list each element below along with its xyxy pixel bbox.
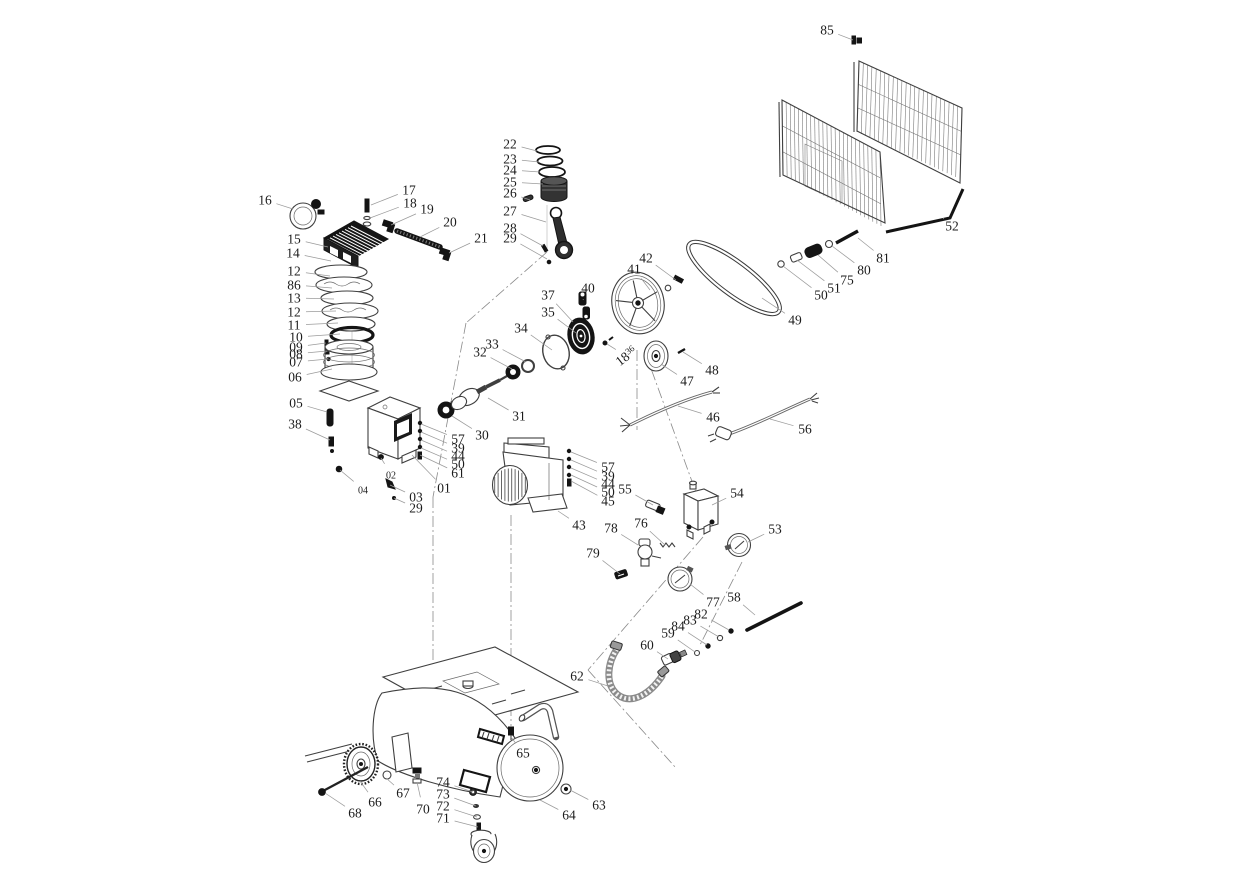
crankshaft-assembly (438, 292, 613, 418)
part-label-02: 02 (386, 471, 396, 482)
part-label-26: 26 (503, 186, 517, 201)
elbow-fitting-21 (439, 248, 450, 261)
part-label-55: 55 (618, 482, 632, 497)
part-label-64: 64 (562, 808, 576, 823)
electric-motor (493, 438, 572, 512)
part-label-65: 65 (516, 746, 530, 761)
plug (715, 426, 733, 441)
part-label-52: 52 (945, 219, 959, 234)
part-label-63: 63 (592, 798, 606, 813)
tank-handle-65 (518, 706, 556, 737)
part-label-71: 71 (436, 811, 450, 826)
washer-67 (383, 771, 391, 779)
belt-guard-grille (779, 36, 963, 232)
tank-assembly (305, 647, 578, 863)
part-label-83: 83 (683, 613, 697, 628)
pressure-switch (684, 481, 718, 539)
part-label-04: 04 (358, 486, 368, 497)
part-label-56: 56 (798, 422, 812, 437)
part-label-16: 16 (258, 193, 272, 208)
drive-belt (680, 232, 789, 325)
part-label-62: 62 (570, 669, 584, 684)
part-label-05: 05 (289, 396, 303, 411)
exploded-view-diagram: 8552818075515049424140373534333231304847… (0, 0, 1242, 872)
parts-diagram-canvas: 8552818075515049424140373534333231304847… (0, 0, 1242, 872)
part-label-15: 15 (287, 232, 301, 247)
part-label-40: 40 (581, 281, 595, 296)
part-29-dot (547, 260, 551, 264)
flywheel (606, 267, 670, 338)
part-label-20: 20 (443, 215, 457, 230)
part-label-38: 38 (288, 417, 302, 432)
screw-38 (329, 437, 334, 453)
cylinder-head-15 (324, 221, 388, 268)
part-label-76: 76 (634, 516, 648, 531)
part-label-22: 22 (503, 137, 517, 152)
drain-valve-63 (561, 784, 571, 794)
base-gasket (320, 381, 378, 401)
caster-hardware-71-74 (470, 789, 481, 830)
part-label-18: 1836 (613, 343, 640, 369)
part-label-85: 85 (820, 23, 834, 38)
part-label-53: 53 (768, 522, 782, 537)
caster-wheel (471, 830, 497, 862)
elbow-fitting-19 (382, 220, 394, 233)
part-label-34: 34 (514, 321, 528, 336)
part-label-70: 70 (416, 802, 430, 817)
part-label-60: 60 (640, 638, 654, 653)
motor-bolt-dots (567, 449, 571, 486)
part-label-33: 33 (485, 337, 499, 352)
part-label-31: 31 (512, 409, 526, 424)
part-label-14: 14 (286, 246, 300, 261)
part-label-37: 37 (541, 288, 555, 303)
part-label-58: 58 (727, 590, 741, 605)
fastener-row (778, 231, 858, 267)
part-labels: 8552818075515049424140373534333231304847… (258, 23, 959, 828)
part-label-06: 06 (288, 370, 302, 385)
regulator-78 (638, 539, 661, 566)
part-label-13: 13 (287, 291, 301, 306)
part-label-46: 46 (706, 410, 720, 425)
valve-plate-stack (315, 265, 378, 343)
piston-25 (541, 177, 567, 202)
part-label-21: 21 (474, 231, 488, 246)
part-label-07: 07 (289, 355, 303, 370)
part-label-81: 81 (876, 251, 890, 266)
part-label-77: 77 (706, 595, 720, 610)
part-label-78: 78 (604, 521, 618, 536)
setscrew-18-36 (603, 337, 613, 345)
part-label-35: 35 (541, 305, 555, 320)
crankcase (336, 397, 421, 500)
unloader-tube-20 (397, 231, 440, 247)
part-label-48: 48 (705, 363, 719, 378)
part-label-43: 43 (572, 518, 586, 533)
part-label-59: 59 (661, 626, 675, 641)
tank-end-disc (497, 735, 563, 801)
part-label-32: 32 (473, 345, 487, 360)
screw-85 (852, 36, 862, 44)
check-valve-60 (661, 650, 687, 666)
part-label-66: 66 (368, 795, 382, 810)
piston-ring (539, 167, 565, 177)
part-label-54: 54 (730, 486, 744, 501)
part-label-79: 79 (586, 546, 600, 561)
part-label-67: 67 (396, 786, 410, 801)
pressure-gauge-53 (725, 534, 751, 557)
part-label-19: 19 (420, 202, 434, 217)
grille-back-panel-hatch (857, 61, 962, 179)
part-label-80: 80 (857, 263, 871, 278)
part-label-29: 29 (503, 231, 517, 246)
discharge-hose-62 (609, 641, 670, 699)
part-label-29: 29 (409, 501, 423, 516)
air-filter-16 (290, 200, 324, 230)
part-label-42: 42 (639, 251, 653, 266)
piston-ring (538, 157, 563, 166)
motor-cable-46 (620, 387, 720, 432)
part-label-30: 30 (475, 428, 489, 443)
part-label-47: 47 (680, 374, 694, 389)
part-label-51: 51 (827, 281, 841, 296)
part-label-01: 01 (437, 481, 451, 496)
connecting-rod-27 (551, 208, 573, 259)
outlet-pipe-58 (747, 603, 801, 630)
spring-76 (660, 543, 675, 547)
stud-05 (327, 409, 333, 426)
part-label-50: 50 (814, 288, 828, 303)
part-label-68: 68 (348, 806, 362, 821)
piston-ring (536, 146, 560, 154)
part-label-12: 12 (287, 264, 301, 279)
part-label-41: 41 (627, 262, 641, 277)
piston-assembly (523, 146, 573, 264)
part-label-18: 18 (403, 196, 417, 211)
link-plate-40 (579, 292, 590, 319)
oil-seal-33 (522, 360, 534, 372)
part-label-45: 45 (601, 494, 615, 509)
part-label-27: 27 (503, 204, 517, 219)
part-label-61: 61 (451, 466, 465, 481)
part-label-75: 75 (840, 273, 854, 288)
small-fittings-59-82-83-84 (695, 629, 734, 656)
head-bolt-17-18 (363, 199, 371, 226)
pressure-gauge-77 (668, 566, 694, 591)
bearing-cover-35 (565, 316, 597, 356)
flywheel-screw (665, 275, 683, 290)
part-label-49: 49 (788, 313, 802, 328)
